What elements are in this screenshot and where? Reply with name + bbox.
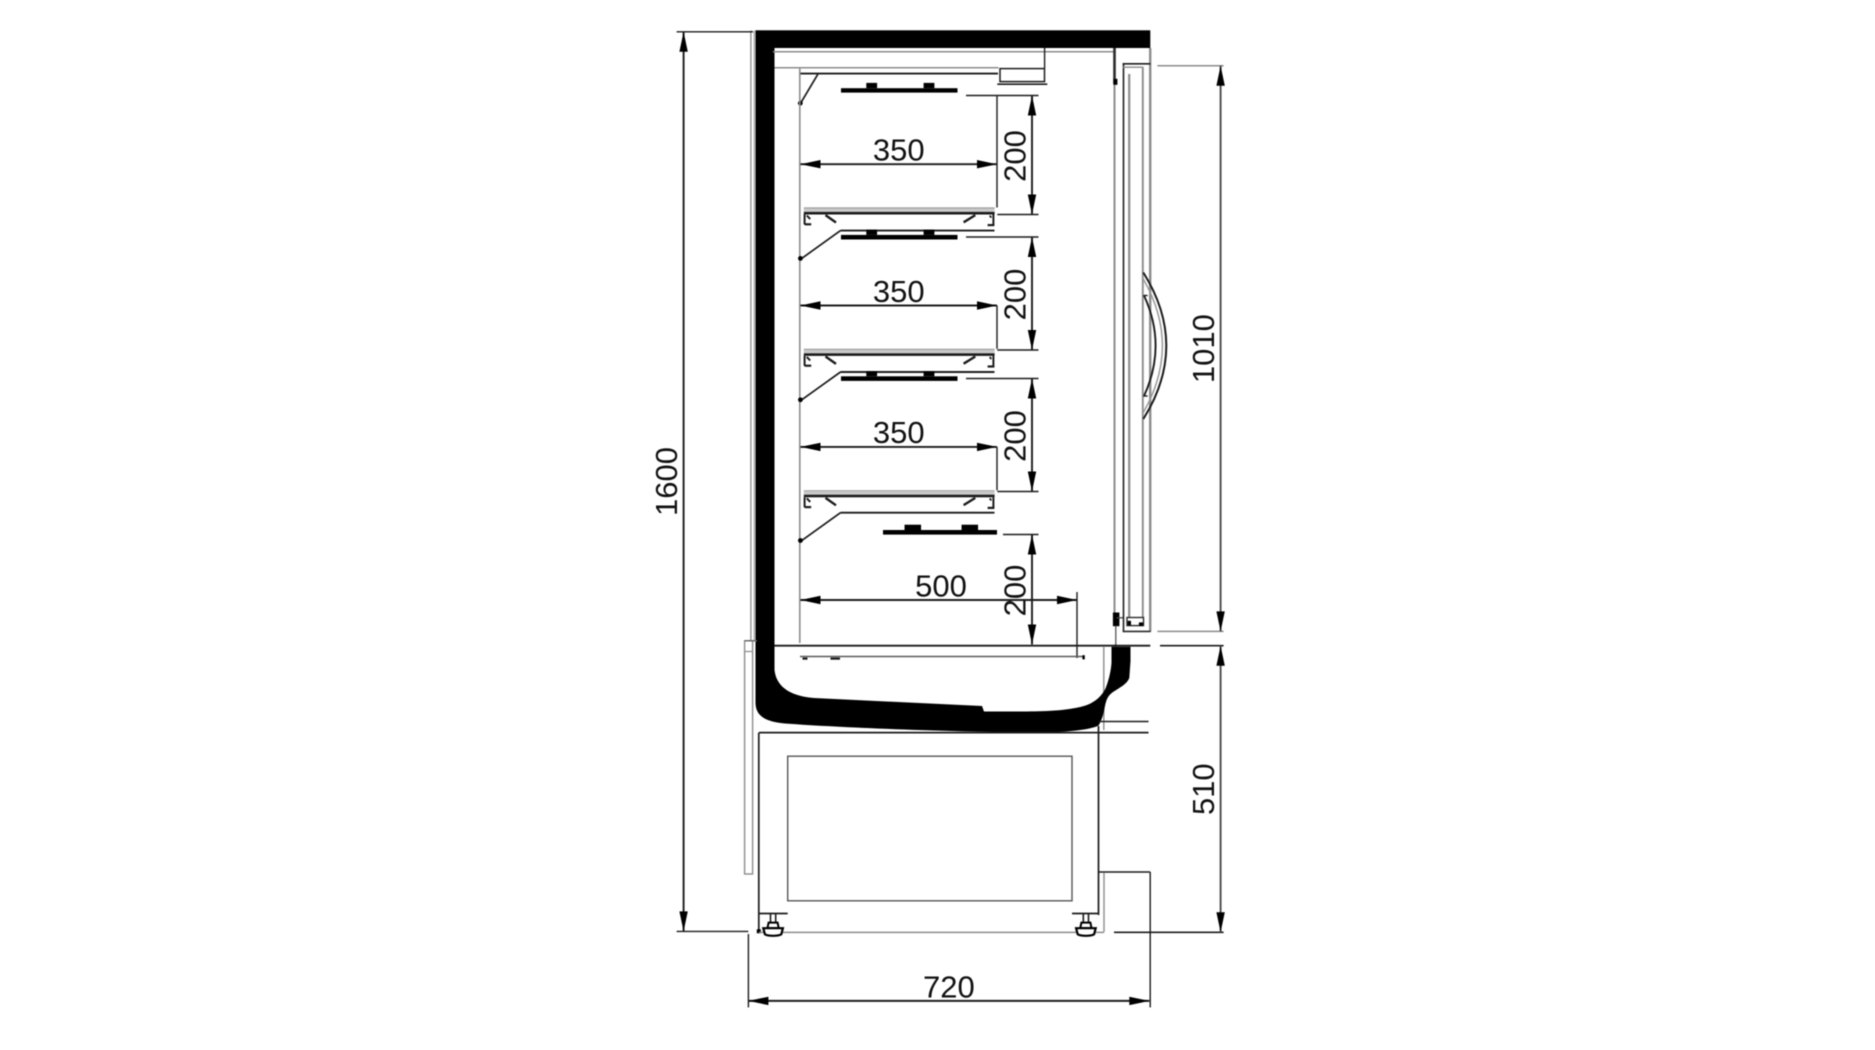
svg-text:200: 200 — [998, 565, 1033, 617]
svg-text:200: 200 — [998, 269, 1033, 321]
svg-text:350: 350 — [873, 274, 925, 309]
svg-text:350: 350 — [873, 415, 925, 450]
svg-text:510: 510 — [1186, 763, 1221, 815]
svg-text:200: 200 — [998, 410, 1033, 462]
svg-text:1600: 1600 — [649, 447, 684, 516]
svg-text:1010: 1010 — [1186, 314, 1221, 383]
svg-text:350: 350 — [873, 133, 925, 168]
svg-text:200: 200 — [998, 130, 1033, 182]
svg-text:500: 500 — [915, 568, 967, 603]
svg-text:720: 720 — [923, 969, 975, 1004]
